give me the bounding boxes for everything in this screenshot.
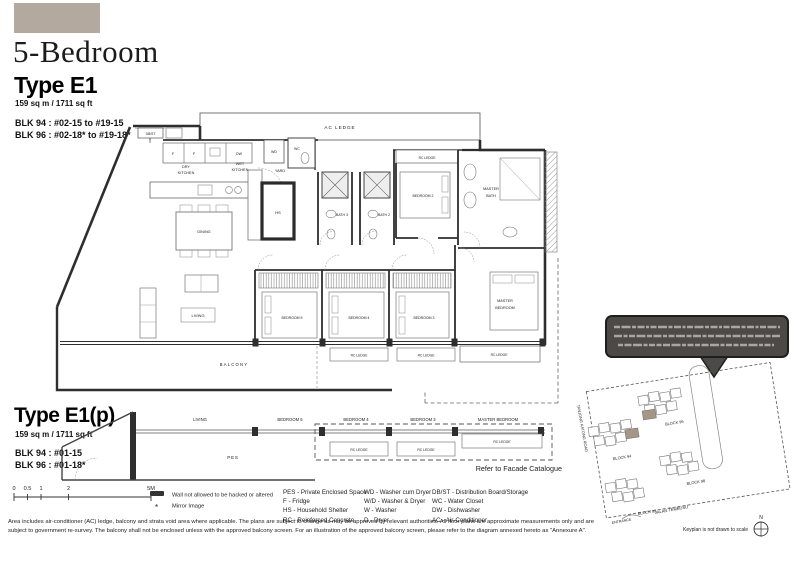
bedroom2-label: BEDROOM 2 (412, 194, 433, 198)
bedroom3-label: BEDROOM 3 (413, 316, 434, 320)
e1p-bedroom5-label: BEDROOM 5 (277, 417, 303, 422)
compass: N (754, 515, 768, 536)
bedroom5-label: BEDROOM 5 (281, 316, 302, 320)
rc-ledge-master-label: RC LEDGE (491, 353, 509, 357)
e1p-rc-ledge-master-label: RC LEDGE (493, 440, 511, 444)
wardrobe-bd5 (259, 273, 318, 288)
side-rc-ledge (545, 152, 557, 252)
ac-ledge-label: AC LEDGE (324, 125, 355, 130)
dry-kitchen-label-2: KITCHEN (178, 171, 195, 175)
compass-n-label: N (759, 515, 763, 521)
balcony-label: BALCONY (220, 362, 248, 367)
disclaimer-line-1: Area includes air-conditioner (AC) ledge… (8, 519, 594, 525)
shoe-cabinet (166, 128, 182, 138)
abbr-pes: PES - Private Enclosed Space (283, 488, 367, 497)
bedroom-door-arcs (258, 255, 407, 270)
abbr-wd2: W/D - Washer & Dryer (364, 497, 431, 506)
dining-label: DINING (197, 230, 210, 234)
road-tanjong-katong: TANJONG KATONG ROAD (576, 404, 589, 452)
yard-label: YARD (275, 169, 286, 173)
e1p-facade-rail (133, 430, 545, 433)
washer-dryer-label: WD (271, 150, 277, 154)
wet-kitchen-label: WET (236, 162, 245, 166)
highlighted-unit-blk96 (642, 409, 656, 420)
floor-plan-e1: AC LEDGE DB/ST F F DW (57, 113, 558, 403)
dry-kitchen-label: DRY (182, 165, 190, 169)
abbr-w: W - Washer (364, 506, 431, 515)
pes-gate-arc (75, 458, 97, 480)
bath3-label: BATH 3 (336, 213, 348, 217)
abbr-hs: HS - Household Shelter (283, 506, 367, 515)
disclaimer-line-2: subject to government re-survey. The bal… (8, 528, 586, 534)
pes-boundary (62, 412, 315, 480)
scale-tick-2: 2 (67, 486, 70, 492)
block-96-label: BLOCK 96 (665, 419, 684, 427)
bath-3: BATH 3 (318, 172, 352, 245)
keyplan: BLOCK 96 BLOCK 94 BLOCK 98 (576, 355, 791, 536)
e1p-rc-ledge-bd4-label: RC LEDGE (350, 448, 368, 452)
dining-area: DINING (176, 205, 232, 257)
scale-tick-0: 0 (12, 486, 15, 492)
rc-ledge-bd3-label: RC LEDGE (418, 354, 436, 358)
bedroom4-label: BEDROOM 4 (348, 316, 369, 320)
wardrobe-bd3 (393, 273, 451, 288)
e1p-bedroom4-label: BEDROOM 4 (343, 417, 369, 422)
bedroom-2: BEDROOM 2 (396, 150, 458, 254)
dbst-label: DB/ST (146, 132, 156, 136)
wc-label: WC (294, 147, 300, 151)
block-94-cluster (588, 418, 640, 448)
block-98-cluster (659, 449, 699, 478)
kitchen-cabinets: F F DW WD (163, 140, 284, 163)
pes-label: PES (227, 455, 238, 460)
floor-plan-e1p: LIVING BEDROOM 5 BEDROOM 4 BEDROOM 3 MAS… (62, 412, 562, 480)
living-label: LIVING (191, 313, 204, 318)
wc-room: WC (288, 138, 315, 168)
mirror-symbol: * (155, 503, 158, 512)
highlighted-unit-blk94 (625, 428, 639, 439)
scale-tick-1: 1 (39, 486, 42, 492)
abbr-dbst: DB/ST - Distribution Board/Storage (432, 488, 528, 497)
rc-ledge-bd4-label: RC LEDGE (351, 354, 369, 358)
living-area: LIVING (140, 275, 218, 338)
e1p-rc-ledge-bd3-label: RC LEDGE (417, 448, 435, 452)
dishwasher-label: DW (236, 152, 243, 156)
wall-legend-label: Wall not allowed to be hacked or altered (172, 493, 273, 499)
scale-tick-05: 0.5 (24, 486, 32, 492)
bath-2: BATH 2 (360, 150, 394, 245)
block-94-label: BLOCK 94 (613, 453, 633, 461)
callout-bubble (606, 316, 788, 377)
master-bedroom-label-2: BEDROOM (495, 306, 515, 310)
abbr-f: F - Fridge (283, 497, 367, 506)
master-bath-label-2: BATH (486, 194, 496, 198)
master-bedroom-label: MASTER (497, 299, 513, 303)
floorplan-page: { "header": { "title": "5-Bedroom", "swa… (0, 0, 800, 587)
entrance-label: ENTRANCE (611, 518, 632, 525)
abbr-dw: DW - Dishwasher (432, 506, 528, 515)
rc-ledge-top-label: RC LEDGE (419, 156, 437, 160)
block-96-cluster (637, 388, 684, 420)
e1p-bedroom3-label: BEDROOM 3 (410, 417, 436, 422)
plan-legend: Wall not allowed to be hacked or altered… (150, 491, 273, 512)
hs-label: HS (275, 210, 281, 215)
master-bedroom: MASTER BEDROOM (460, 248, 538, 330)
mirror-legend-label: Mirror Image (172, 504, 204, 510)
wet-kitchen-label-2: KITCHEN (232, 168, 249, 172)
e1p-master-bedroom-label: MASTER BEDROOM (478, 417, 519, 422)
beds: BEDROOM 5 BEDROOM 4 BEDROOM 3 (262, 292, 449, 338)
bath2-label: BATH 2 (378, 213, 390, 217)
block-92-cluster (605, 476, 645, 505)
adjacent-parcel (688, 364, 724, 470)
master-bath-label: MASTER (483, 187, 499, 191)
keyplan-note: Keyplan is not drawn to scale (683, 527, 748, 533)
abbr-wd: WD - Washer cum Dryer (364, 488, 431, 497)
block-98-label: BLOCK 98 (686, 478, 705, 486)
wardrobe-bd4 (326, 273, 385, 288)
wall-symbol (150, 491, 164, 496)
master-bath: MASTER BATH (458, 150, 557, 252)
abbr-wc: WC - Water Closet (432, 497, 528, 506)
e1p-living-label: LIVING (193, 417, 207, 422)
scale-bar: 0 0.5 1 2 5M (12, 486, 155, 501)
facade-note: Refer to Facade Catalogue (476, 464, 562, 473)
road-jalan-tembusu: JALAN TEMBUSU (654, 504, 688, 515)
